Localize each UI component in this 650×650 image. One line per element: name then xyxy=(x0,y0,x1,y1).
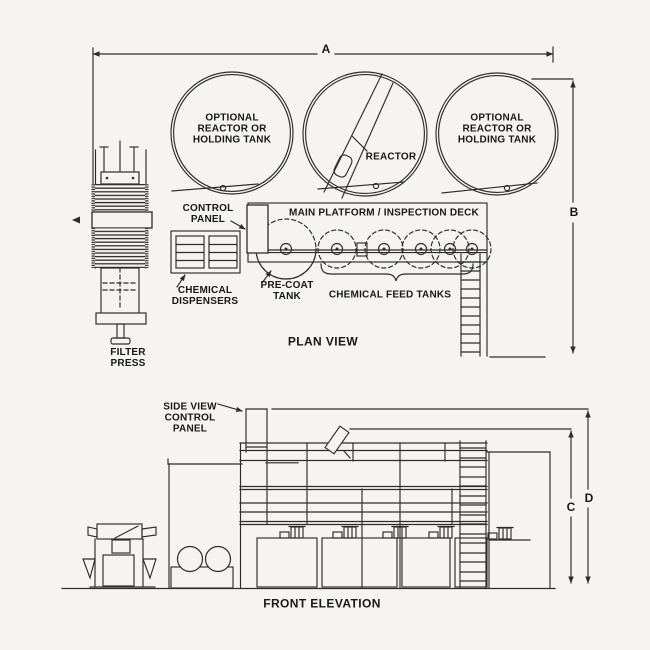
plan-view-title: PLAN VIEW xyxy=(288,337,358,348)
reactor-circle xyxy=(303,72,427,198)
pre-coat-tank-label: PRE-COAT TANK xyxy=(260,280,313,302)
reactor-motor xyxy=(325,426,350,458)
front-elevation-title: FRONT ELEVATION xyxy=(263,599,381,610)
storage-tanks xyxy=(257,538,487,587)
filter-press-elevation xyxy=(83,524,156,587)
agitator xyxy=(383,527,408,539)
control-panel-tower xyxy=(218,404,267,452)
chemical-feed-tanks-label: CHEMICAL FEED TANKS xyxy=(329,290,451,301)
reactor-label: REACTOR xyxy=(366,152,417,163)
holding-tank-right-label: OPTIONAL REACTOR OR HOLDING TANK xyxy=(458,113,536,146)
filter-press-plan xyxy=(72,141,152,344)
filter-press-label: FILTER PRESS xyxy=(110,347,145,369)
dim-b-label: B xyxy=(567,206,582,218)
agitator xyxy=(333,527,358,539)
front-elevation-drawing xyxy=(62,404,588,589)
ladder-plan xyxy=(461,254,480,356)
tank-agitators xyxy=(280,527,513,540)
holding-tank-left-label: OPTIONAL REACTOR OR HOLDING TANK xyxy=(193,113,271,146)
dim-c-label: C xyxy=(564,501,579,513)
ladder-elevation xyxy=(460,441,486,588)
dim-a-label: A xyxy=(319,43,334,55)
agitator xyxy=(488,528,513,540)
engineering-drawing: A B C D OPTIONAL REACTOR OR HOLDING TANK… xyxy=(0,0,650,650)
canopy xyxy=(168,459,242,588)
line-art xyxy=(0,0,650,650)
structure-frame xyxy=(240,409,550,588)
control-panel-plan-label: CONTROL PANEL xyxy=(183,203,234,225)
chemical-dispensers-box xyxy=(171,231,240,287)
round-tanks xyxy=(171,547,233,589)
agitator xyxy=(280,527,305,539)
main-platform-label: MAIN PLATFORM / INSPECTION DECK xyxy=(289,208,479,219)
agitator xyxy=(429,527,454,539)
dimension-d xyxy=(272,409,588,583)
side-view-control-panel-label: SIDE VIEW CONTROL PANEL xyxy=(163,402,216,435)
chemical-dispensers-label: CHEMICAL DISPENSERS xyxy=(172,285,238,307)
dim-d-label: D xyxy=(582,492,597,504)
plan-view-drawing xyxy=(72,47,573,357)
press-side-arrow xyxy=(72,217,80,224)
chemical-feed-tanks-circles xyxy=(318,230,491,281)
